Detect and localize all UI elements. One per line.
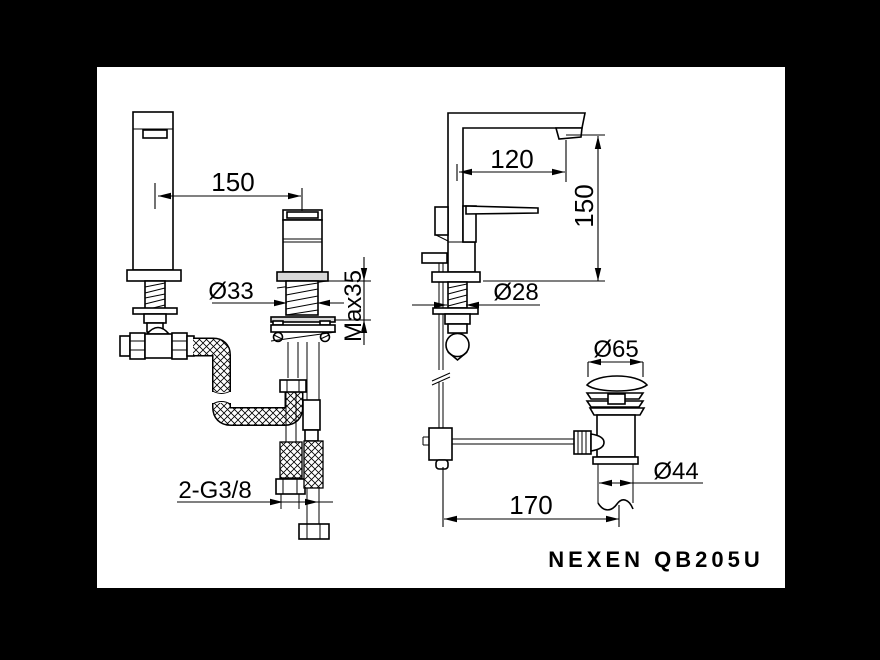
dim-label-rod-to-drain: 170 bbox=[509, 490, 552, 520]
dim-label-drain-body: Ø44 bbox=[653, 458, 698, 485]
dim-label-drain-flange: Ø65 bbox=[593, 336, 638, 363]
product-name: NEXEN QB205U bbox=[548, 547, 764, 572]
dim-label-shank-front: Ø33 bbox=[208, 278, 253, 305]
dim-label-max-deck: Max35 bbox=[340, 270, 367, 342]
drawing-sheet bbox=[97, 67, 785, 588]
dim-label-shank-side: Ø28 bbox=[493, 279, 538, 306]
dim-label-center-distance: 150 bbox=[211, 167, 254, 197]
technical-drawing: 150 Ø33 Max35 2-G3/8 120 150 Ø28 bbox=[0, 0, 880, 660]
dim-label-inlet-thread: 2-G3/8 bbox=[178, 477, 251, 504]
angle-valve bbox=[120, 328, 194, 360]
dim-label-spout-height: 150 bbox=[569, 184, 599, 227]
dim-label-spout-reach: 120 bbox=[490, 144, 533, 174]
